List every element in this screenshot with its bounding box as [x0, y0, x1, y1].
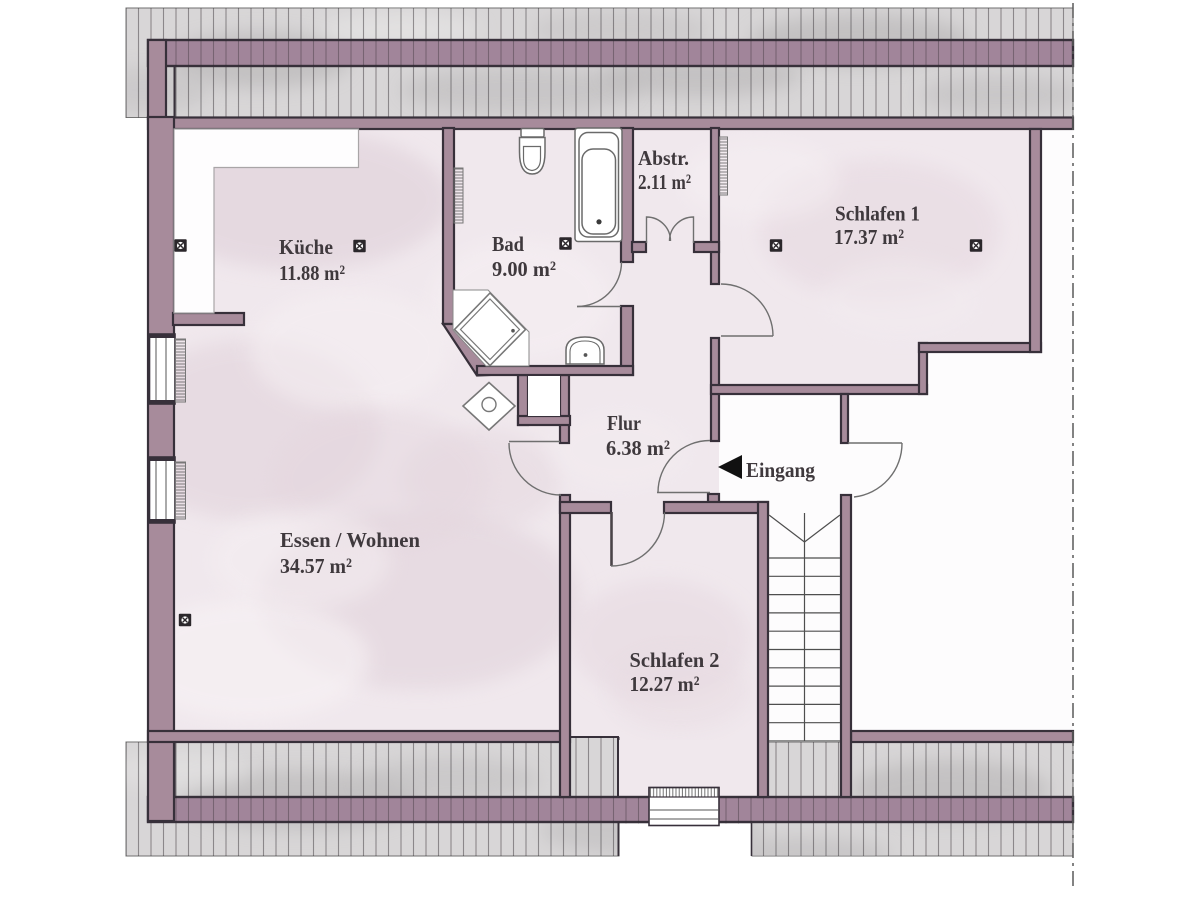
svg-text:Eingang: Eingang	[746, 458, 815, 482]
svg-text:Küche: Küche	[279, 235, 333, 259]
svg-text:Essen / Wohnen: Essen / Wohnen	[280, 528, 420, 552]
svg-text:34.57 m²: 34.57 m²	[280, 554, 352, 578]
svg-text:Schlafen 1: Schlafen 1	[835, 202, 920, 226]
svg-text:Abstr.: Abstr.	[638, 146, 689, 170]
svg-text:Bad: Bad	[492, 232, 524, 256]
svg-text:9.00 m²: 9.00 m²	[492, 257, 556, 281]
svg-text:6.38 m²: 6.38 m²	[606, 436, 670, 460]
svg-text:2.11 m²: 2.11 m²	[638, 170, 691, 194]
svg-text:11.88 m²: 11.88 m²	[279, 261, 345, 285]
svg-text:Flur: Flur	[607, 411, 641, 435]
svg-text:12.27 m²: 12.27 m²	[630, 672, 700, 696]
svg-text:17.37 m²: 17.37 m²	[834, 225, 904, 249]
svg-text:Schlafen 2: Schlafen 2	[630, 648, 720, 672]
